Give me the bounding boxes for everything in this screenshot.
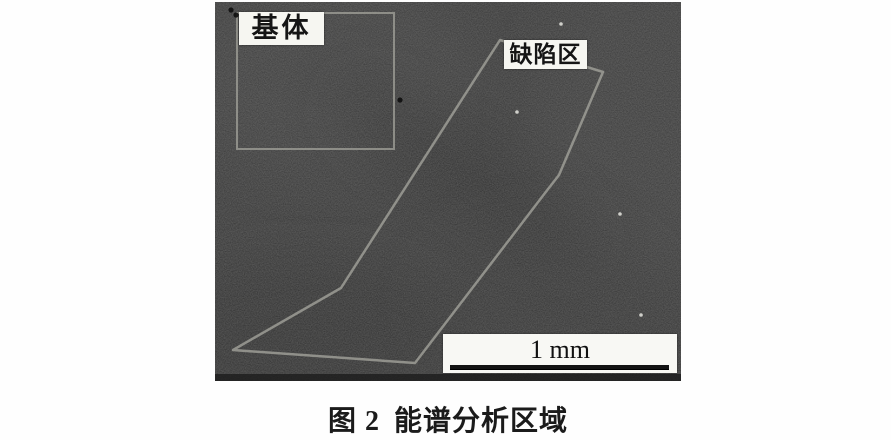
figure-caption-title: 能谱分析区域 [394,406,568,437]
sem-micrograph: 基体 缺陷区 1 mm [215,2,681,381]
figure-canvas: 基体 缺陷区 1 mm 图 2能谱分析区域 [0,0,891,440]
scale-bar-line [450,365,669,370]
bottom-edge-strip [215,374,681,381]
defect-region-label: 缺陷区 [504,40,587,69]
matrix-region-label: 基体 [239,12,324,45]
scale-bar-text: 1 mm [443,335,677,365]
scale-bar: 1 mm [443,334,677,373]
figure-caption: 图 2能谱分析区域 [215,399,681,439]
micrograph-drawing [215,2,681,381]
figure-caption-number: 图 2 [328,406,380,437]
